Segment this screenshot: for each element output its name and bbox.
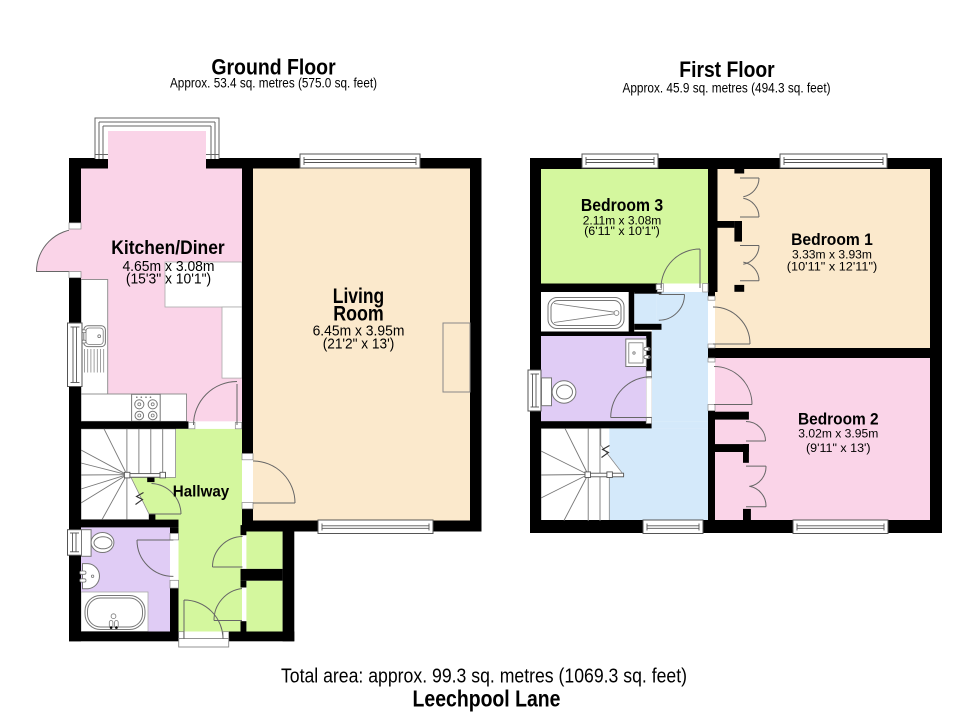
svg-text:Approx. 53.4 sq. metres (575.0: Approx. 53.4 sq. metres (575.0 sq. feet) [170, 76, 377, 91]
svg-text:3.33m x 3.93m: 3.33m x 3.93m [792, 250, 872, 262]
svg-text:(9'11" x 13'): (9'11" x 13') [806, 443, 871, 455]
svg-text:First Floor: First Floor [679, 57, 775, 82]
svg-text:Total area: approx. 99.3 sq. m: Total area: approx. 99.3 sq. metres (106… [281, 666, 687, 688]
svg-text:Approx. 45.9 sq. metres (494.3: Approx. 45.9 sq. metres (494.3 sq. feet) [622, 81, 830, 96]
svg-text:(10'11" x 12'11"): (10'11" x 12'11") [787, 262, 878, 274]
svg-text:Room: Room [333, 303, 384, 326]
svg-text:(21'2" x 13'): (21'2" x 13') [323, 337, 395, 353]
svg-text:(15'3" x 10'1"): (15'3" x 10'1") [126, 272, 211, 288]
svg-text:Hallway: Hallway [173, 484, 230, 501]
svg-text:(6'11" x 10'1"): (6'11" x 10'1") [584, 226, 660, 238]
svg-text:Kitchen/Diner: Kitchen/Diner [111, 237, 225, 259]
svg-text:Bedroom 3: Bedroom 3 [581, 195, 663, 215]
svg-text:Leechpool Lane: Leechpool Lane [413, 686, 561, 712]
svg-text:Bedroom 2: Bedroom 2 [798, 410, 879, 428]
svg-text:3.02m x 3.95m: 3.02m x 3.95m [798, 429, 878, 441]
svg-text:Bedroom 1: Bedroom 1 [791, 231, 873, 249]
